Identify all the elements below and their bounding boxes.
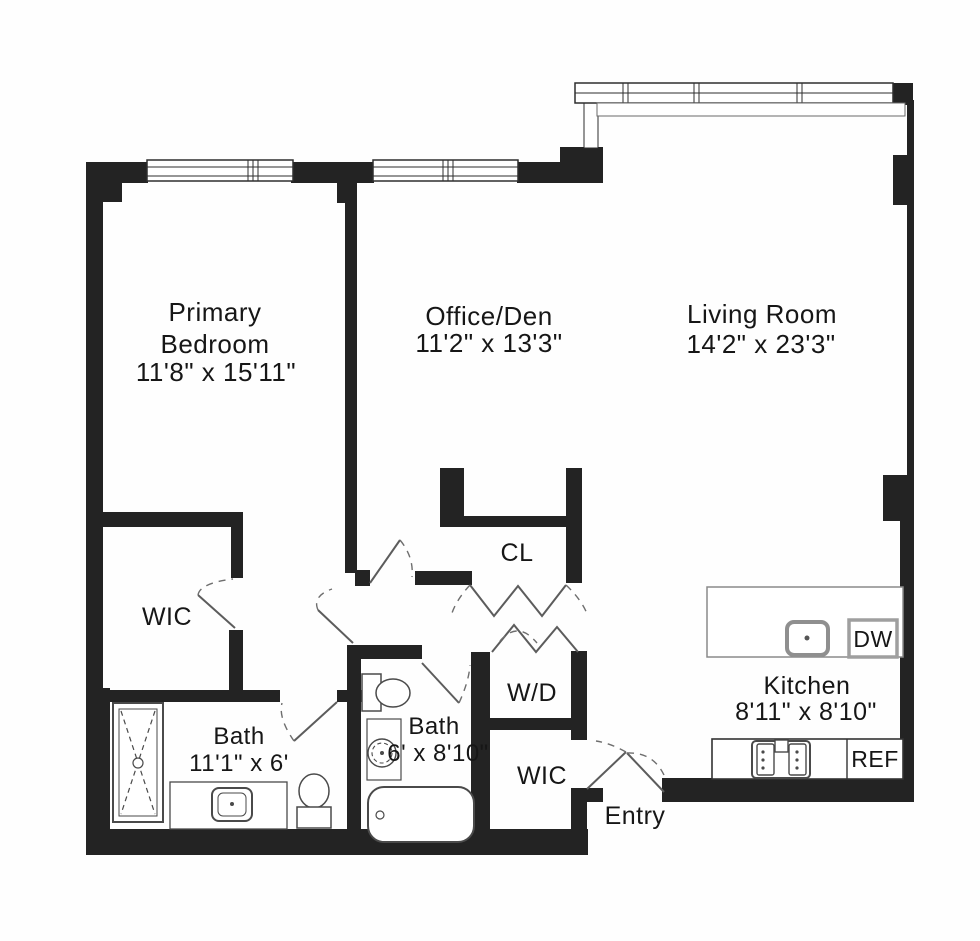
- wall-wic-top: [86, 512, 243, 527]
- wall-top-mid: [291, 162, 374, 183]
- door-arc-bath-primary: [281, 703, 294, 741]
- room-dims-living-room: 14'2" x 23'3": [686, 331, 835, 357]
- door-bifold-closet: [470, 585, 566, 616]
- door-leaf-wic-entry: [587, 752, 626, 789]
- wall-cl-right: [566, 468, 582, 583]
- range-cooktop: [752, 740, 810, 778]
- wall-entry-step: [587, 788, 603, 802]
- wall-wd-bottom: [471, 718, 587, 730]
- door-arc-wic-entry: [596, 741, 626, 752]
- door-arc-closet-left: [452, 585, 470, 613]
- door-arc-laundry: [500, 631, 537, 643]
- window-living-room: [575, 83, 905, 116]
- room-label-wic-entry: WIC: [517, 764, 567, 789]
- door-bifold-laundry: [492, 625, 578, 652]
- room-label-living-room: Living Room: [687, 301, 837, 327]
- room-label-entry: Entry: [605, 804, 666, 829]
- appliance-label-refrigerator: REF: [851, 748, 899, 771]
- room-dims-kitchen: 8'11" x 8'10": [735, 700, 877, 725]
- room-label-kitchen: Kitchen: [764, 674, 851, 699]
- room-label-laundry: W/D: [507, 681, 557, 706]
- window-sill-ledge: [597, 103, 905, 116]
- room-dims-primary-bedroom: 11'8" x 15'11": [136, 359, 296, 385]
- door-leaf-bath-primary: [294, 702, 337, 741]
- door-leaf-bedroom: [318, 610, 353, 643]
- wall-wic-right-upper: [231, 512, 243, 578]
- window-bedroom: [147, 160, 293, 181]
- room-label-closet: CL: [501, 541, 534, 566]
- toilet-second-bath: [362, 674, 410, 711]
- room-dims-office-den: 11'2" x 13'3": [415, 330, 562, 356]
- room-label-office-den: Office/Den: [425, 303, 552, 329]
- wall-bottom-main: [86, 829, 588, 855]
- room-label-primary-bedroom-line1: Primary: [168, 299, 261, 325]
- room-dims-bath-primary: 11'1" x 6': [189, 752, 289, 776]
- wall-bedroom-office-divider: [345, 183, 357, 573]
- wall-bath1-top: [86, 690, 280, 702]
- vanity-primary-bath: [170, 782, 287, 829]
- door-leaf-office: [370, 540, 400, 583]
- wall-bath2-top-stub: [347, 645, 422, 659]
- room-label-bath-primary: Bath: [213, 725, 264, 749]
- wall-divider-jamb: [355, 570, 370, 586]
- shower-stall: [113, 703, 163, 822]
- wall-bath2-left: [347, 645, 361, 841]
- toilet-primary-bath: [297, 774, 331, 828]
- wall-top-step-block: [560, 147, 603, 164]
- wall-right-pier-top: [893, 155, 913, 205]
- wall-cl-stub-left: [415, 571, 472, 585]
- wall-bottom-kitchen: [662, 778, 914, 802]
- floor-plan: Primary Bedroom 11'8" x 15'11" Office/De…: [0, 0, 980, 941]
- door-leaf-bath-second: [422, 663, 459, 703]
- door-leaf-wic-primary: [198, 595, 235, 628]
- room-label-primary-bedroom-line2: Bedroom: [161, 331, 270, 357]
- door-arc-wic-primary: [198, 579, 233, 595]
- wall-wd-right: [571, 651, 587, 721]
- door-arc-office: [400, 540, 412, 577]
- room-dims-bath-second: 6' x 8'10": [387, 742, 488, 766]
- appliance-label-dishwasher: DW: [853, 628, 892, 651]
- wall-top-office-right: [517, 162, 603, 183]
- wall-wic2-right-lower: [571, 788, 587, 855]
- wall-right-pier-mid: [883, 475, 908, 521]
- door-arc-bedroom: [317, 589, 332, 610]
- bathtub: [368, 787, 474, 842]
- room-label-wic-primary: WIC: [142, 605, 192, 630]
- wall-cl-top: [450, 516, 572, 527]
- door-arc-closet-right: [566, 585, 588, 616]
- room-label-bath-second: Bath: [408, 715, 459, 739]
- wall-wic2-right-upper: [571, 718, 587, 740]
- window-office: [373, 160, 518, 181]
- door-leaf-entry: [627, 753, 664, 792]
- door-arc-bath-second: [459, 665, 470, 703]
- floor-plan-drawing: [0, 0, 980, 941]
